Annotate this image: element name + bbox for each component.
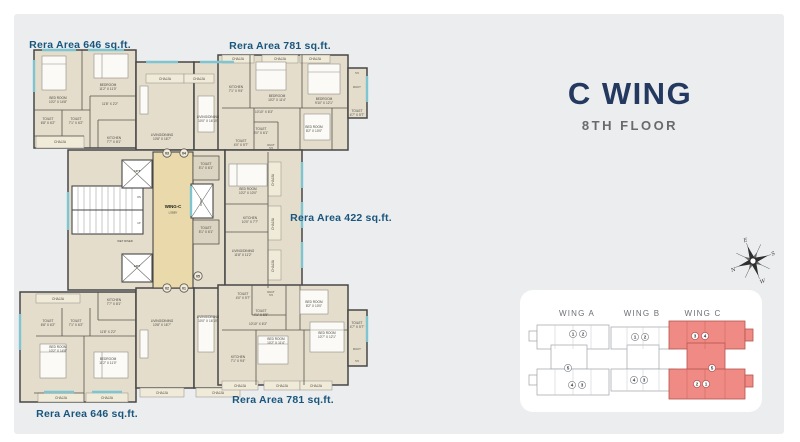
room-label-line: CHAJJA [55, 396, 68, 400]
room-label: BEDROOM9'10" X 12'1" [315, 97, 333, 105]
room-label-line: 8'2" X 10'0" [306, 129, 322, 133]
room-label-line: 6'8" X 6'2" [41, 121, 55, 125]
room-label-line: CHAJJA [159, 77, 172, 81]
room-label-line: 10'7" X 12'1" [318, 335, 336, 339]
room-label: CHAJJA [234, 384, 247, 388]
room-label-line: CHAJJA [271, 217, 275, 230]
room-label: CHAJJA [193, 77, 206, 81]
keyplan-wing-c-label: WING C [685, 309, 722, 318]
page-title: C WING [470, 78, 790, 111]
room-label-line: CHAJJA [232, 57, 245, 61]
room-label: DUCT [353, 85, 361, 89]
room-label: DN [137, 196, 141, 199]
room-label-line: 5.5 [269, 293, 273, 297]
room-label: DUCT [353, 347, 361, 351]
door-number: 05 [196, 274, 200, 278]
keyplan-unit-number: 4 [704, 334, 707, 339]
room-label-line: 5.5 [355, 359, 359, 363]
room-label-line: 7'1" X 6'2" [69, 121, 83, 125]
room-label-line: CHAJJA [212, 391, 225, 395]
room-label-line: CHAJJA [309, 57, 322, 61]
room-label-line: 7'1" X 9'4" [231, 359, 245, 363]
room-label: 5.5 [355, 71, 359, 75]
room-label: BED ROOM8'2" X 10'0" [305, 125, 323, 133]
door-number: 04 [182, 151, 186, 155]
room-label-line: 11'8" X 2'2" [100, 330, 116, 334]
keyplan-unit-number: 2 [582, 332, 585, 337]
floorplan: BED ROOM10'2" X 14'8"BEDROOM11'2" X 11'0… [0, 0, 460, 442]
room-label-line: 5.5 [269, 146, 273, 150]
room-label-line: DUCT [199, 198, 203, 206]
room-label-line: 7'7" X 8'1" [107, 140, 121, 144]
room-label: 11'8" X 2'2" [100, 330, 116, 334]
compass-letter-s: S [771, 251, 777, 258]
rera-area-label-line: Rera Area 646 sq.ft. [29, 39, 131, 51]
room-label-line: 10'10" X 6'3" [249, 322, 267, 326]
room-label-line: 10'2" X 10'0" [239, 191, 257, 195]
room-label-line: 6'8" X 6'2" [41, 323, 55, 327]
rera-area-label-line: Rera Area 646 sq.ft. [36, 408, 138, 420]
door-number: 03 [165, 151, 169, 155]
room-label: CHAJJA [310, 384, 323, 388]
room-label: DUCT [199, 198, 203, 206]
room-label: TOILET4'7" X 5'7" [350, 321, 364, 329]
room-label: CHAJJA [274, 57, 287, 61]
room-label: BEDROOM10'2" X 11'4" [268, 94, 286, 102]
page-subtitle: 8TH FLOOR [470, 118, 790, 133]
room-label-line: 7'1" X 9'4" [229, 89, 243, 93]
room-label: CHAJJA [276, 384, 289, 388]
room-label-line: CHAJJA [52, 297, 65, 301]
room-label: CHAJJA [309, 57, 322, 61]
room-label-line: 5'1" X 6'1" [199, 166, 213, 170]
room-label: CHAJJA [271, 173, 275, 186]
room-label: LIVING/DINING10'0" X 16'10" [197, 315, 220, 323]
room-label-line: 10'2" X 14'8" [49, 349, 67, 353]
door-number: 01 [182, 286, 186, 290]
keyplan-unit-number: 1 [572, 332, 575, 337]
keyplan-unit-number: 2 [696, 382, 699, 387]
room-label-line: CHAJJA [193, 77, 206, 81]
room-label-line: CHAJJA [271, 173, 275, 186]
room-label-line: CHAJJA [274, 57, 287, 61]
room-label-line: 11'8" X 2'2" [102, 102, 118, 106]
room-label-line: 5'1" X 6'1" [199, 230, 213, 234]
room-label-line: DUCT [353, 347, 361, 351]
room-label: TOILET5'1" X 6'1" [199, 162, 213, 170]
room-label-line: CHAJJA [156, 391, 169, 395]
room-label: BEDROOM11'2" X 11'0" [99, 83, 117, 91]
room-label: TOILET4'7" X 5'7" [350, 109, 364, 117]
room-label-line: 10'0" X 16'10" [198, 119, 218, 123]
room-label: UP [137, 222, 141, 225]
room-label: BED ROOM8'2" X 10'0" [305, 300, 323, 308]
room-label: LIVING/DINING11'8" X 11'2" [232, 249, 255, 257]
room-label: TOILET4'0" X 5'7" [236, 292, 250, 300]
room-label: CHAJJA [54, 140, 67, 144]
room-label: KITCHEN10'0" X 7'7" [242, 216, 258, 224]
room-label: TOILET6'8" X 6'2" [41, 319, 55, 327]
keyplan-unit-number: 5 [567, 366, 570, 371]
room-label-line: CHAJJA [54, 140, 67, 144]
room-label: BEDROOM11'2" X 11'0" [99, 357, 117, 365]
room-label-line: DUCT [353, 85, 361, 89]
room-label: LOBBY [169, 211, 178, 215]
rera-area-label: Rera Area 781 sq.ft. [229, 40, 331, 52]
room-label: TOILET4'0" X 5'7" [234, 139, 248, 147]
room-label-line: 11'8" X 11'2" [234, 253, 252, 257]
room-label-line: 4'0" X 5'7" [236, 296, 250, 300]
room-label-line: 10'0" X 7'7" [242, 220, 258, 224]
keyplan-wing-b-label: WING B [624, 309, 661, 318]
room-label: BED ROOM10'2" X 14'8" [49, 96, 67, 104]
room-label: 10'10" X 6'3" [249, 322, 267, 326]
room-label: BED ROOM10'2" X 14'8" [49, 345, 67, 353]
room-label-line: 10'0" X 16'10" [198, 319, 218, 323]
room-label-line: 4'7" X 5'7" [350, 325, 364, 329]
room-label-line: 4'0" X 5'7" [234, 143, 248, 147]
room-label: KITCHEN7'7" X 8'1" [107, 136, 122, 144]
rera-area-label-line: Rera Area 781 sq.ft. [232, 394, 334, 406]
room-label-line: 7'1" X 6'2" [69, 323, 83, 327]
keyplan-unit-number: 4 [571, 383, 574, 388]
keyplan-unit-number: 3 [694, 334, 697, 339]
room-label: TOILET5'1" X 6'1" [199, 226, 213, 234]
compass-rose-icon: ESWN [724, 232, 782, 290]
room-label-line: UP [137, 222, 141, 225]
keyplan-unit-number: 1 [634, 335, 637, 340]
room-label: LIVING/DINING10'8" X 16'7" [151, 133, 174, 141]
room-label: TOILET7'1" X 6'2" [69, 117, 83, 125]
room-label: LIFT [134, 169, 140, 173]
header: C WING 8TH FLOOR [470, 78, 790, 133]
room-label-line: WET RISER [117, 239, 133, 243]
room-label-line: 9'10" X 12'1" [315, 101, 333, 105]
keyplan-unit-number: 1 [705, 382, 708, 387]
room-label: CHAJJA [156, 391, 169, 395]
keyplan: WING A WING B WING C 12543124334521 [505, 285, 790, 420]
room-label-line: CHAJJA [271, 259, 275, 272]
room-label: KITCHEN7'1" X 9'4" [229, 85, 244, 93]
room-label: TOILET6'8" X 6'2" [41, 117, 55, 125]
room-label-line: 5'0" X 6'1" [254, 131, 268, 135]
room-label-line: CHAJJA [234, 384, 247, 388]
rera-area-label-line: Rera Area 422 sq.ft. [290, 212, 392, 224]
room-label: BED ROOM10'7" X 12'1" [318, 331, 336, 339]
room-label: WING-C [165, 204, 182, 209]
room-label-line: 7'7" X 8'1" [107, 302, 121, 306]
room-label-line: 11'2" X 11'0" [99, 87, 117, 91]
compass-letter-n: N [729, 266, 737, 274]
room-label-line: 10'2" X 11'4" [268, 98, 286, 102]
room-label: CHAJJA [232, 57, 245, 61]
room-label-line: 11'2" X 11'0" [99, 361, 117, 365]
rera-area-label-line: Rera Area 781 sq.ft. [229, 40, 331, 52]
room-label: KITCHEN7'1" X 9'4" [231, 355, 246, 363]
room-label: LIFT [134, 264, 140, 268]
rera-area-label: Rera Area 646 sq.ft. [29, 39, 131, 51]
unit-bottom-left-646 [20, 292, 136, 402]
room-label-line: 10'10" X 6'3" [255, 110, 273, 114]
room-label: TOILET7'1" X 6'2" [69, 319, 83, 327]
room-label-line: 10'2" X 14'8" [49, 100, 67, 104]
lobby [153, 152, 193, 288]
room-label: CHAJJA [212, 391, 225, 395]
keyplan-unit-number: 4 [633, 378, 636, 383]
room-label-line: CHAJJA [101, 396, 114, 400]
room-label: CHAJJA [159, 77, 172, 81]
room-label: TOILET4'1" X 5'5" [254, 309, 268, 317]
keyplan-unit-number: 5 [711, 366, 714, 371]
room-label: 5.5 [355, 359, 359, 363]
keyplan-unit-number: 3 [643, 378, 646, 383]
keyplan-wing-a-label: WING A [559, 309, 595, 318]
room-label-line: LIFT [134, 264, 140, 268]
room-label: 11'8" X 2'2" [102, 102, 118, 106]
room-label-line: LOBBY [169, 211, 178, 215]
room-label-line: CHAJJA [276, 384, 289, 388]
room-label: KITCHEN7'7" X 8'1" [107, 298, 122, 306]
room-label-line: 4'1" X 5'5" [254, 313, 268, 317]
rera-area-label: Rera Area 781 sq.ft. [232, 394, 334, 406]
room-label-line: WING-C [165, 204, 182, 209]
keyplan-unit-number: 2 [644, 335, 647, 340]
room-label-line: CHAJJA [310, 384, 323, 388]
unit-bottom-right-annex [348, 310, 367, 366]
room-label: LIVING/DINING10'0" X 16'10" [197, 115, 220, 123]
room-label: CHAJJA [101, 396, 114, 400]
room-label-line: 4'7" X 5'7" [350, 113, 364, 117]
room-label: BED ROOM10'2" X 10'0" [239, 187, 257, 195]
room-label-line: LIFT [134, 169, 140, 173]
keyplan-unit-number: 3 [581, 383, 584, 388]
screen: BED ROOM10'2" X 14'8"BEDROOM11'2" X 11'0… [0, 0, 800, 442]
rera-area-label: Rera Area 422 sq.ft. [290, 212, 392, 224]
room-label: 10'10" X 6'3" [255, 110, 273, 114]
room-label-line: 8'2" X 10'0" [306, 304, 322, 308]
room-label: BED ROOM10'2" X 11'4" [267, 337, 285, 345]
rera-area-label: Rera Area 646 sq.ft. [36, 408, 138, 420]
door-number: 02 [165, 286, 169, 290]
room-label: LIVING/DINING10'8" X 16'7" [151, 319, 174, 327]
room-label-line: 5.5 [355, 71, 359, 75]
room-label-line: 10'8" X 16'7" [153, 137, 171, 141]
compass-letter-e: E [742, 237, 749, 244]
room-label-line: 10'8" X 16'7" [153, 323, 171, 327]
room-label: CHAJJA [55, 396, 68, 400]
room-label-line: DN [137, 196, 141, 199]
room-label: CHAJJA [271, 217, 275, 230]
room-label: CHAJJA [52, 297, 65, 301]
room-label: WET RISER [117, 239, 133, 243]
room-label: TOILET5'0" X 6'1" [254, 127, 268, 135]
room-label-line: 10'2" X 11'4" [267, 341, 285, 345]
room-label: CHAJJA [271, 259, 275, 272]
